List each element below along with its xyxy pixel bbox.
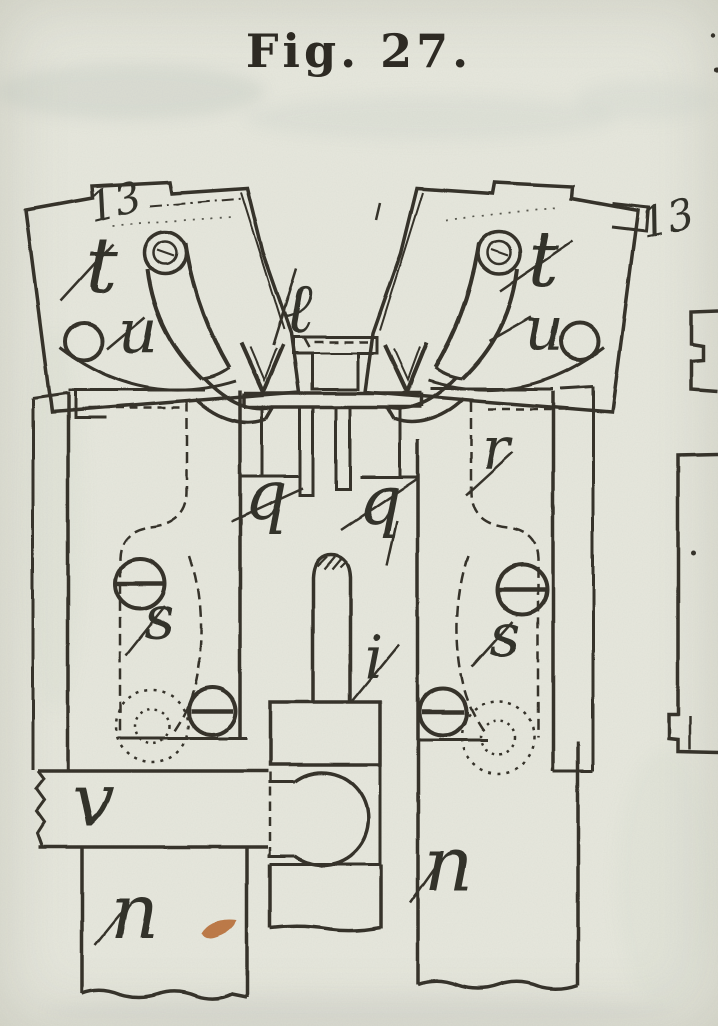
paper-grain (0, 0, 718, 1026)
scanned-page: Fig. 27. (0, 0, 718, 1026)
figure-27-drawing: 13 t u (0, 0, 718, 1026)
